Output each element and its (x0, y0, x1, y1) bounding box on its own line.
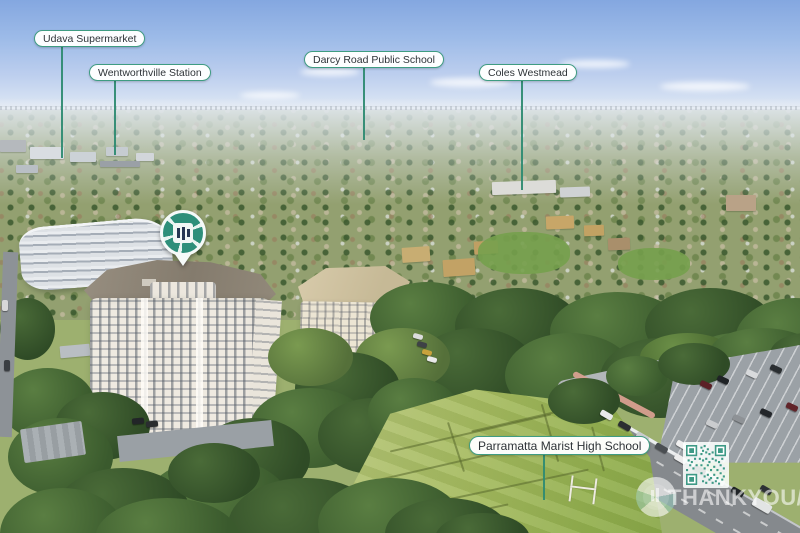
swirl-logo-icon (160, 210, 206, 256)
park-lawn (478, 232, 570, 274)
tree-canopy (268, 328, 353, 386)
callout-label: Coles Westmead (488, 67, 568, 79)
tree-canopy (168, 443, 260, 503)
callout-coles-westmead: Coles Westmead (479, 64, 577, 81)
watermark-text: THANKYOU/ (668, 485, 800, 511)
building-roof (584, 225, 604, 237)
goal-crossbar (570, 485, 596, 490)
leader-line-udava (61, 46, 63, 158)
cloud (660, 82, 750, 91)
goal-post (592, 478, 597, 504)
building-roof (100, 161, 140, 167)
callout-label: Parramatta Marist High School (478, 439, 641, 453)
building-roof (442, 258, 475, 277)
qr-code-graphic (686, 445, 726, 485)
building-roof (608, 238, 630, 251)
building-roof (402, 246, 431, 263)
property-location-pin-icon (158, 210, 208, 266)
building-roof (16, 165, 38, 173)
building-roof (60, 344, 91, 359)
watermark-bar (656, 488, 659, 502)
callout-wentworthville-station: Wentworthville Station (89, 64, 211, 81)
building-roof (560, 186, 590, 197)
car (4, 360, 10, 371)
building-bar (182, 227, 185, 240)
callout-label: Wentworthville Station (98, 67, 202, 79)
callout-label: Udava Supermarket (43, 33, 136, 45)
building-roof (70, 152, 96, 162)
qr-code-icon (683, 442, 729, 488)
leader-line-wentworthville (114, 80, 116, 155)
building-roof (546, 216, 574, 230)
building-bar (177, 228, 180, 238)
leader-line-coles (521, 80, 523, 190)
pin-buildings-glyph (173, 223, 193, 243)
callout-udava-supermarket: Udava Supermarket (34, 30, 145, 47)
leader-line-marist (543, 452, 545, 500)
tower-pilaster (196, 298, 203, 446)
building-roof (106, 147, 128, 156)
callout-label: Darcy Road Public School (313, 54, 435, 66)
callout-darcy-road-public-school: Darcy Road Public School (304, 51, 444, 68)
car (146, 420, 159, 427)
building-roof (492, 180, 556, 195)
car (2, 300, 8, 311)
leader-line-darcy (363, 67, 365, 140)
building-roof (136, 153, 154, 161)
car (132, 417, 145, 424)
cloud (300, 68, 360, 76)
building-roof (0, 140, 26, 152)
park-lawn (618, 248, 690, 280)
building-roof (726, 195, 756, 211)
building-roof (30, 147, 64, 159)
rugby-goalpost (569, 475, 600, 504)
watermark-bar (651, 490, 654, 501)
building-bar (187, 229, 190, 237)
callout-parramatta-marist-high-school: Parramatta Marist High School (469, 436, 650, 455)
aerial-photo: Udava Supermarket Wentworthville Station… (0, 0, 800, 533)
